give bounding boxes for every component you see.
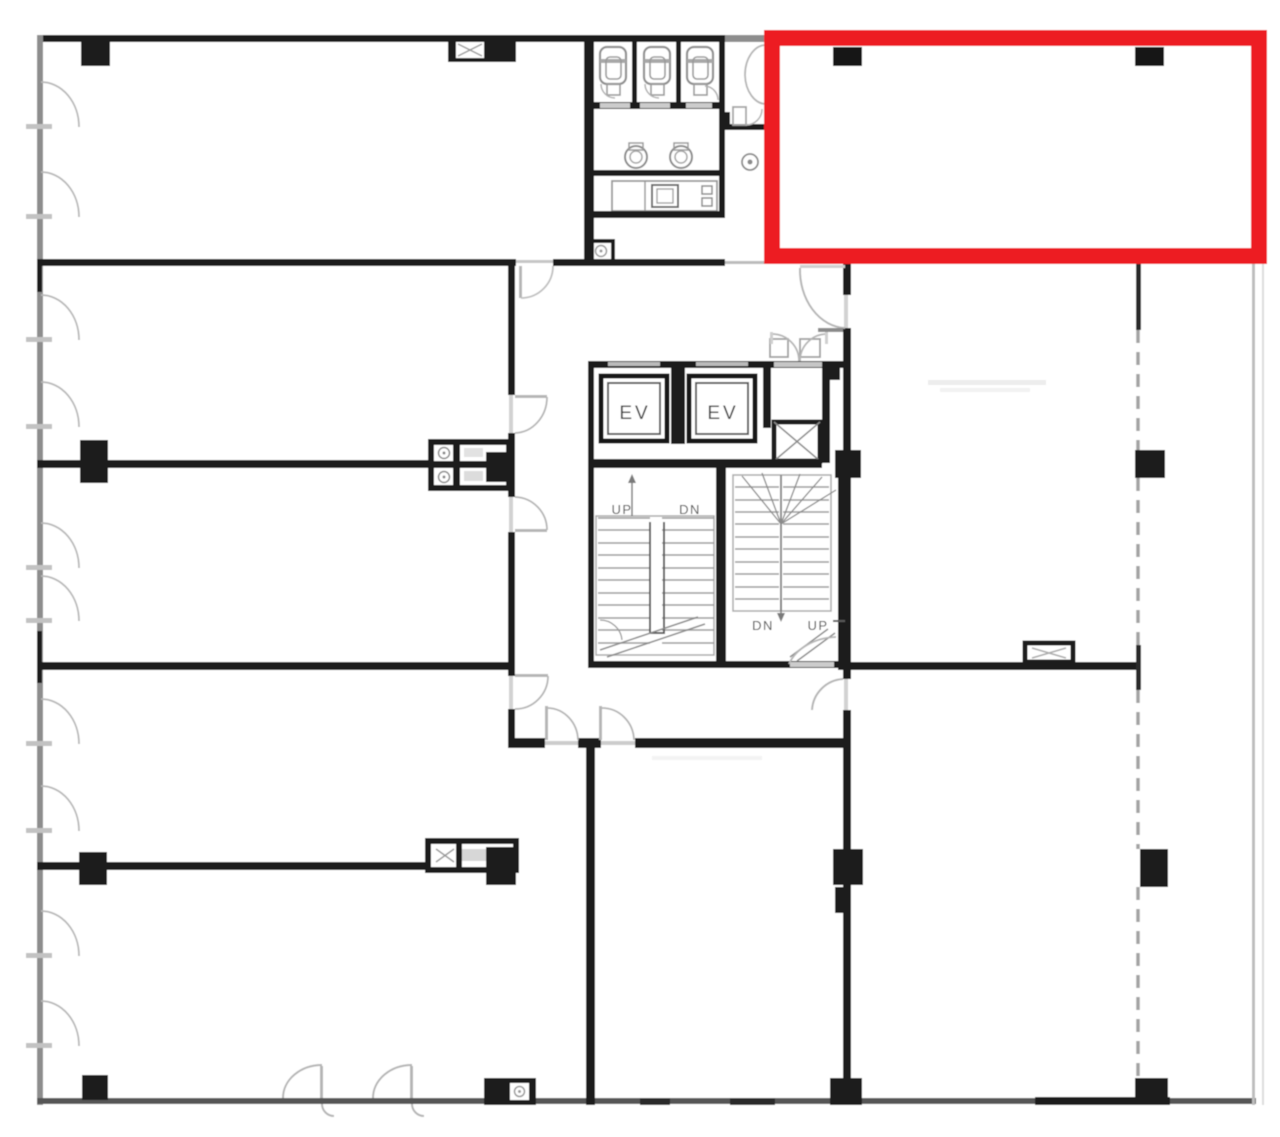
svg-text:EV: EV: [707, 403, 738, 424]
svg-text:UP: UP: [807, 618, 828, 633]
svg-text:UP: UP: [611, 502, 632, 517]
svg-text:DN: DN: [679, 502, 701, 517]
svg-text:EV: EV: [619, 403, 650, 424]
svg-text:DN: DN: [752, 618, 774, 633]
